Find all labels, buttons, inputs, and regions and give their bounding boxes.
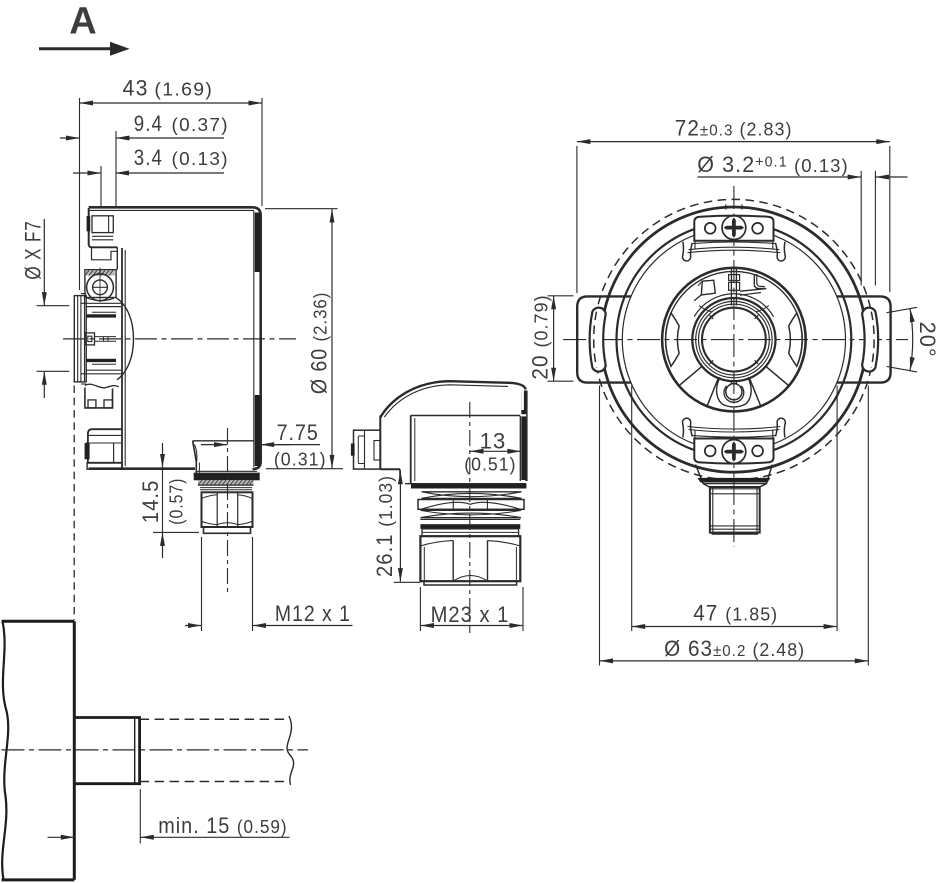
svg-text:Ø 60 (2.36): Ø 60 (2.36) [306, 292, 331, 395]
svg-text:20 (0.79): 20 (0.79) [527, 294, 552, 379]
svg-text:(0.13): (0.13) [172, 148, 229, 169]
svg-text:20°: 20° [915, 322, 940, 358]
svg-text:3.4: 3.4 [134, 145, 163, 170]
svg-text:min. 15 (0.59): min. 15 (0.59) [158, 813, 287, 838]
svg-text:M23 x 1: M23 x 1 [431, 602, 510, 627]
svg-text:9.4: 9.4 [134, 111, 163, 136]
svg-text:43: 43 [123, 76, 149, 101]
svg-text:M12 x 1: M12 x 1 [275, 601, 351, 626]
svg-text:(1.69): (1.69) [154, 79, 213, 100]
svg-text:72±0.3 (2.83): 72±0.3 (2.83) [675, 115, 793, 140]
svg-text:7.75: 7.75 [277, 420, 319, 445]
svg-text:47 (1.85): 47 (1.85) [693, 601, 778, 626]
svg-text:Ø X F7: Ø X F7 [21, 220, 46, 279]
svg-text:(0.57): (0.57) [166, 478, 187, 525]
svg-text:14.5: 14.5 [138, 480, 163, 524]
svg-text:(0.37): (0.37) [172, 114, 229, 135]
svg-text:26.1 (1.03): 26.1 (1.03) [372, 475, 397, 577]
svg-text:A: A [69, 1, 96, 43]
svg-text:(0.51): (0.51) [464, 454, 516, 475]
svg-text:(0.31): (0.31) [274, 448, 327, 469]
svg-text:13: 13 [480, 429, 507, 454]
